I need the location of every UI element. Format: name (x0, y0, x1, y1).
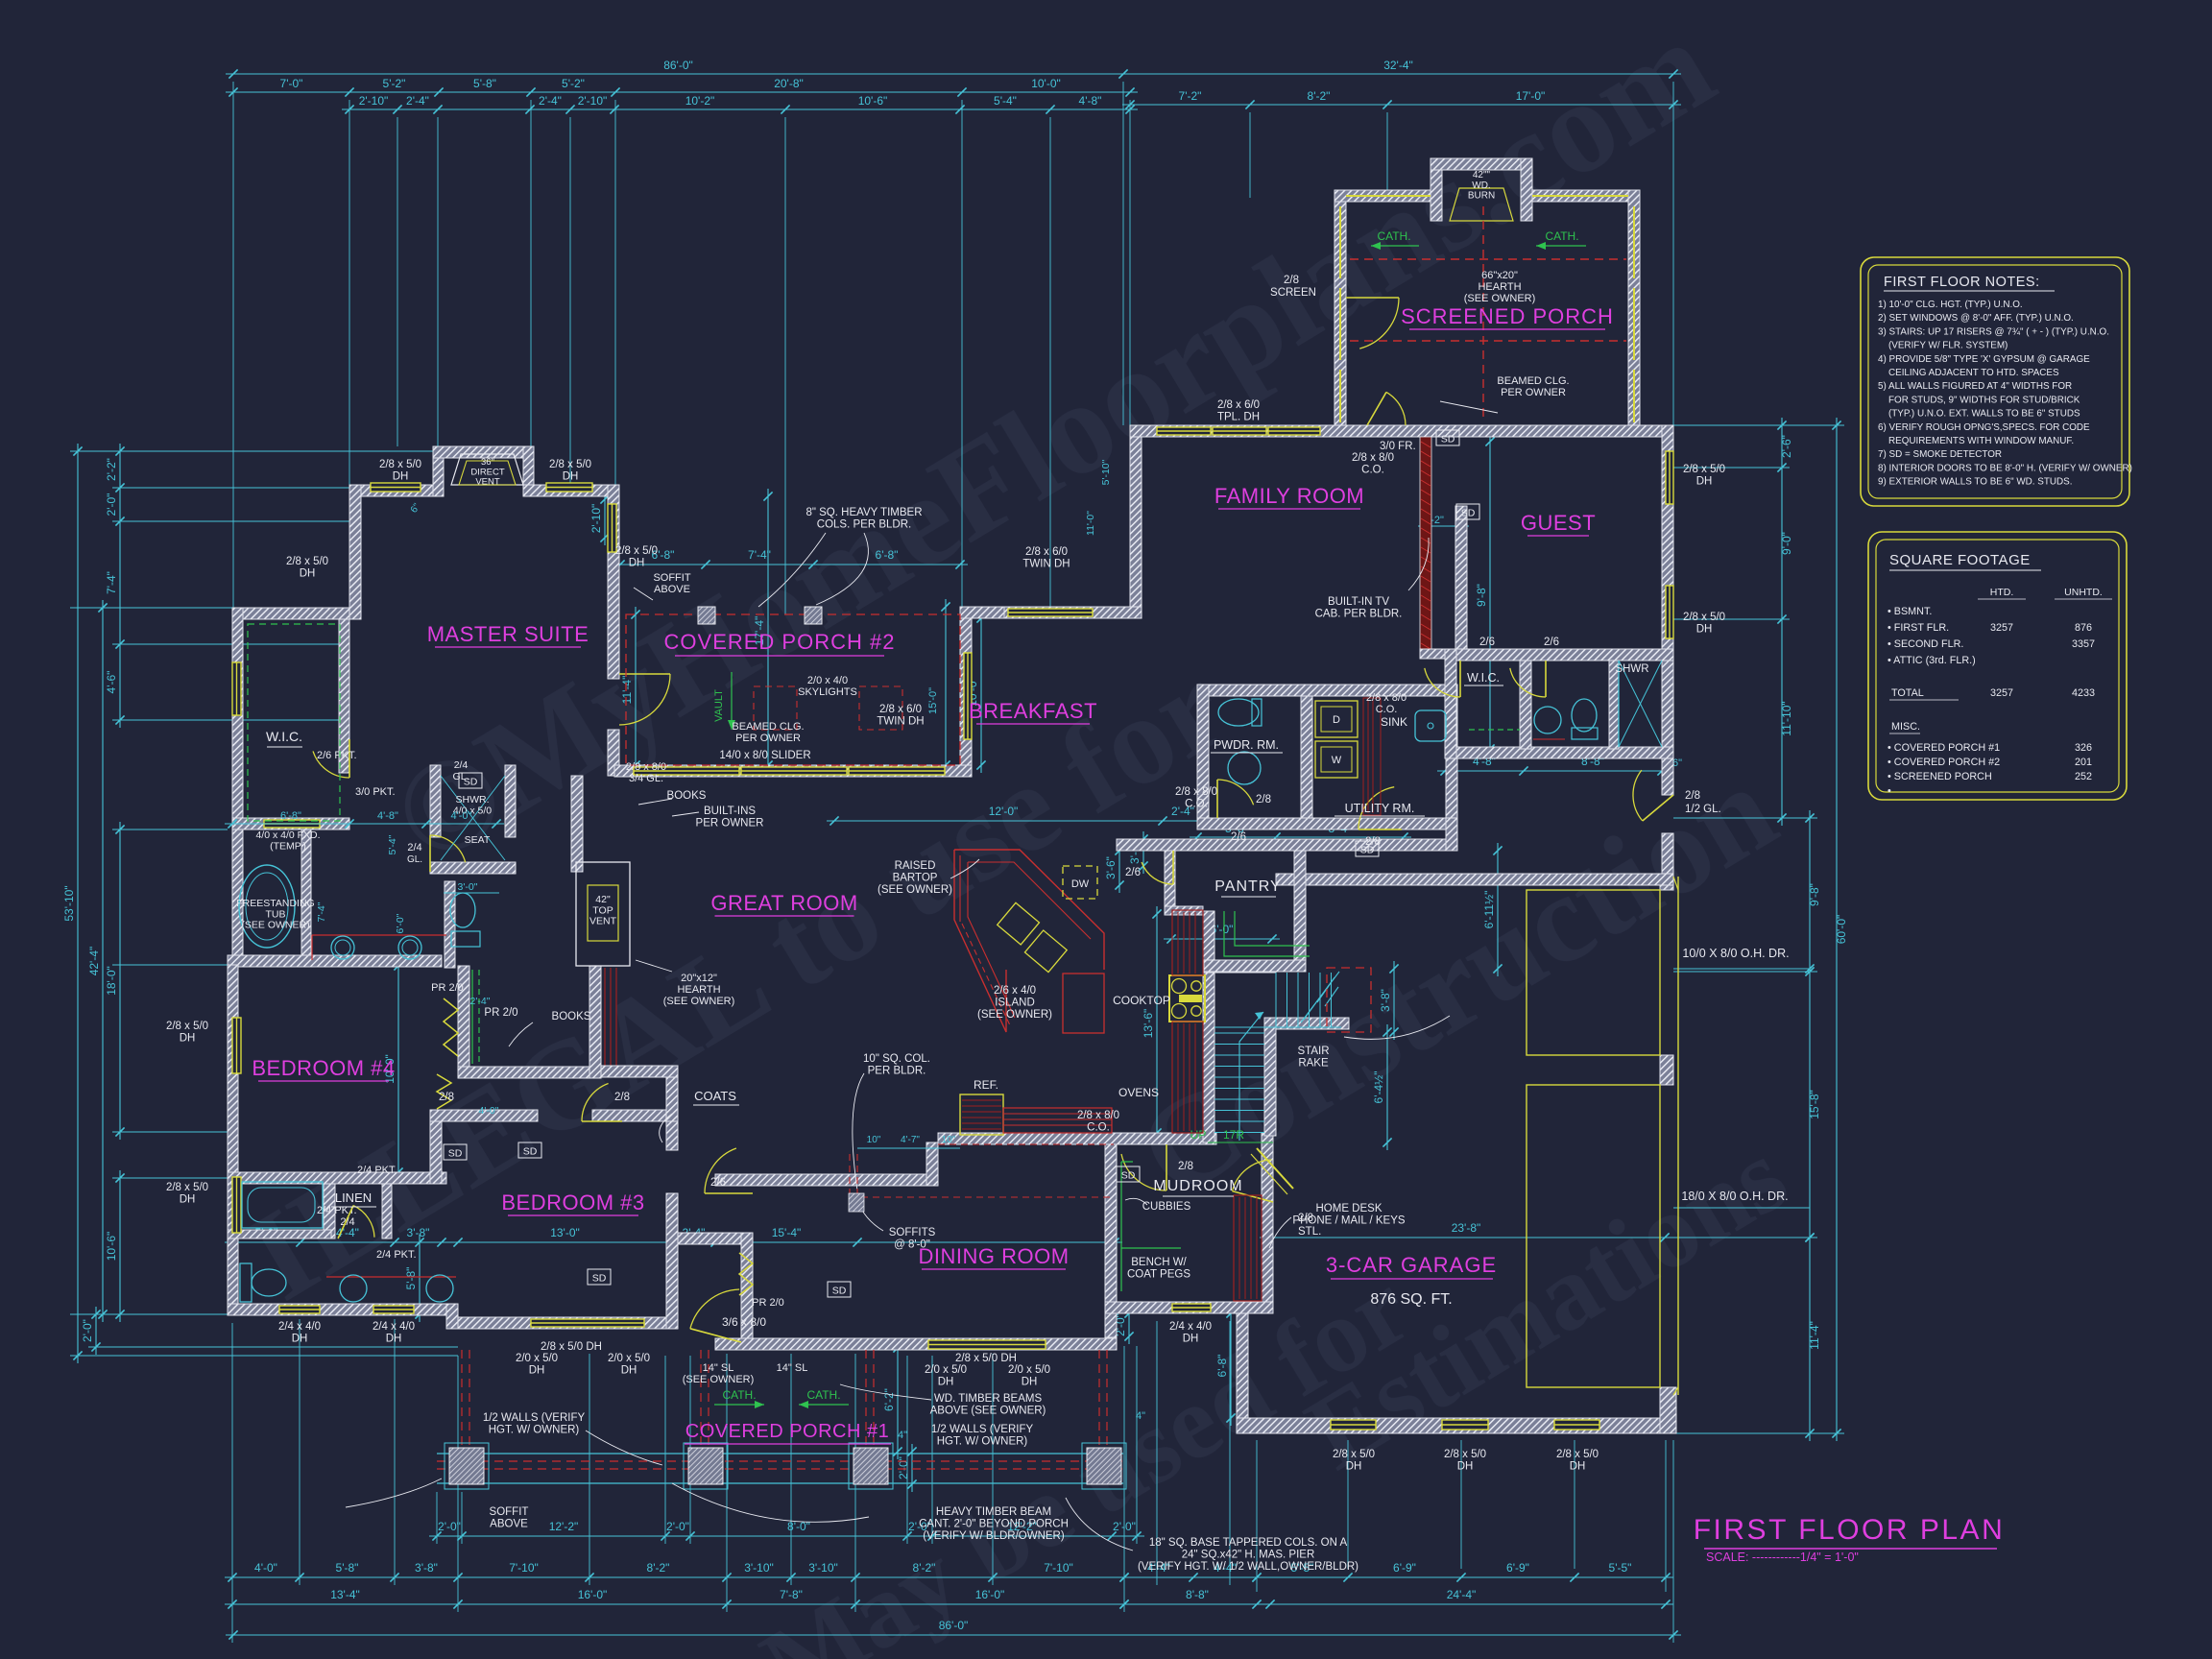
svg-text:DH: DH (1696, 475, 1713, 487)
svg-text:2/0 x 4/0: 2/0 x 4/0 (807, 675, 848, 686)
svg-text:7'-8": 7'-8" (780, 1588, 803, 1601)
svg-text:DH: DH (563, 470, 579, 482)
svg-text:4'-8": 4'-8" (1079, 94, 1102, 108)
svg-text:2/8 x 5/0: 2/8 x 5/0 (615, 545, 658, 557)
svg-text:(VERIFY HGT. W/ 1/2 WALL,OWNER: (VERIFY HGT. W/ 1/2 WALL,OWNER/BLDR) (1138, 1561, 1358, 1573)
svg-text:2/6: 2/6 (1479, 637, 1495, 648)
svg-text:2/8: 2/8 (1284, 275, 1299, 286)
svg-text:C.O.: C.O. (1087, 1121, 1110, 1133)
svg-text:3357: 3357 (2072, 638, 2095, 650)
svg-text:SOFFIT: SOFFIT (653, 572, 690, 584)
svg-text:CUBBIES: CUBBIES (1142, 1201, 1191, 1213)
svg-text:2/8 x 5/0: 2/8 x 5/0 (1444, 1449, 1486, 1460)
svg-text:8" SQ. HEAVY TIMBER: 8" SQ. HEAVY TIMBER (805, 507, 922, 518)
svg-text:12'-2": 12'-2" (549, 1520, 579, 1533)
svg-text:SD: SD (1121, 1170, 1136, 1182)
svg-text:10'-6": 10'-6" (858, 94, 888, 108)
svg-text:•: • (1887, 785, 1891, 797)
svg-text:ABOVE: ABOVE (654, 584, 690, 595)
svg-text:2/6 x 4/0: 2/6 x 4/0 (994, 985, 1036, 997)
svg-text:16'-0": 16'-0" (975, 1588, 1005, 1601)
svg-text:2'-10": 2'-10" (578, 94, 608, 108)
svg-text:4'-6": 4'-6" (105, 671, 118, 694)
svg-text:11'-4": 11'-4" (1808, 1321, 1821, 1350)
svg-text:TWIN DH: TWIN DH (1022, 558, 1070, 569)
svg-text:PER OWNER: PER OWNER (696, 817, 764, 829)
svg-text:4/0 x 4/0 FXD.: 4/0 x 4/0 FXD. (255, 829, 320, 841)
svg-text:15'-8": 15'-8" (1808, 1090, 1821, 1119)
svg-text:4": 4" (898, 1430, 907, 1441)
svg-text:13'-4": 13'-4" (330, 1588, 360, 1601)
svg-text:2/0 x 5/0: 2/0 x 5/0 (516, 1353, 558, 1364)
svg-text:66"x20": 66"x20" (1481, 270, 1518, 281)
svg-text:PR 2/0: PR 2/0 (752, 1297, 784, 1309)
svg-text:2/8: 2/8 (1685, 790, 1700, 802)
svg-text:24'-4": 24'-4" (1447, 1588, 1477, 1601)
svg-text:5'-8": 5'-8" (404, 1267, 418, 1290)
svg-text:5) ALL WALLS FIGURED AT 4" WID: 5) ALL WALLS FIGURED AT 4" WIDTHS FOR (1878, 381, 2072, 392)
svg-text:53'-10": 53'-10" (62, 885, 76, 921)
svg-text:14" SL: 14" SL (703, 1362, 734, 1374)
svg-text:BEDROOM #4: BEDROOM #4 (252, 1056, 395, 1080)
svg-text:2/8 x 5/0: 2/8 x 5/0 (549, 459, 591, 470)
svg-text:4) PROVIDE 5/8" TYPE 'X' GYPSU: 4) PROVIDE 5/8" TYPE 'X' GYPSUM @ GARAGE (1878, 354, 2090, 365)
svg-text:SINK: SINK (1381, 715, 1407, 729)
svg-text:3) STAIRS: UP 17 RISERS @ 7¾": 3) STAIRS: UP 17 RISERS @ 7¾" ( + - ) (T… (1878, 326, 2109, 337)
svg-text:3'-0": 3'-0" (458, 881, 478, 893)
svg-text:15'-0": 15'-0" (927, 687, 939, 714)
svg-text:C.O.: C.O. (1185, 798, 1208, 809)
svg-text:7'-4": 7'-4" (105, 571, 118, 594)
svg-text:• BSMNT.: • BSMNT. (1887, 606, 1932, 617)
svg-text:OVENS: OVENS (1118, 1086, 1159, 1099)
svg-text:3'-10": 3'-10" (808, 1561, 838, 1575)
svg-text:3257: 3257 (1990, 687, 2013, 699)
svg-text:DH: DH (1346, 1460, 1362, 1472)
svg-text:REQUIREMENTS WITH WINDOW MANUF: REQUIREMENTS WITH WINDOW MANUF. (1878, 436, 2074, 446)
svg-text:HTD.: HTD. (1990, 587, 2014, 598)
svg-text:10'-6": 10'-6" (105, 1232, 118, 1262)
svg-text:2/6: 2/6 (1125, 867, 1141, 878)
svg-text:BEAMED CLG.: BEAMED CLG. (732, 721, 804, 733)
svg-text:SOFFIT: SOFFIT (490, 1506, 529, 1518)
svg-text:6'-0": 6'-0" (395, 913, 406, 933)
svg-text:17'-0": 17'-0" (1516, 89, 1546, 103)
svg-text:2'-4": 2'-4" (406, 94, 429, 108)
svg-text:6'-11½": 6'-11½" (1482, 891, 1496, 929)
svg-text:2/8 x 8/0: 2/8 x 8/0 (626, 761, 666, 773)
svg-text:SD: SD (1441, 434, 1455, 445)
svg-text:(SEE OWNER): (SEE OWNER) (663, 996, 735, 1007)
svg-text:(SEE OWNER): (SEE OWNER) (241, 920, 309, 931)
svg-text:COATS: COATS (694, 1089, 736, 1103)
svg-text:2'-2": 2'-2" (105, 458, 118, 481)
svg-text:8'-2": 8'-2" (1308, 89, 1331, 103)
svg-text:BOOKS: BOOKS (552, 1011, 591, 1022)
svg-text:CATH.: CATH. (722, 1388, 756, 1402)
svg-text:2/8 x 5/0: 2/8 x 5/0 (1333, 1449, 1375, 1460)
svg-text:5'-4": 5'-4" (994, 94, 1017, 108)
svg-text:2/8 x 5/0: 2/8 x 5/0 (1556, 1449, 1599, 1460)
svg-text:DH: DH (938, 1376, 954, 1387)
svg-text:(SEE OWNER): (SEE OWNER) (1464, 293, 1536, 304)
svg-text:(SEE OWNER): (SEE OWNER) (977, 1009, 1052, 1021)
svg-text:2'-6": 2'-6" (1780, 435, 1793, 458)
svg-text:12'-0": 12'-0" (989, 805, 1019, 818)
svg-text:RAKE: RAKE (1298, 1057, 1329, 1069)
svg-text:BEAMED CLG.: BEAMED CLG. (1497, 375, 1569, 387)
svg-text:3'-8": 3'-8" (1379, 989, 1392, 1012)
svg-text:326: 326 (2075, 742, 2092, 754)
svg-text:20'-8": 20'-8" (774, 77, 804, 90)
svg-text:HEARTH: HEARTH (1478, 281, 1521, 293)
svg-text:SCREEN: SCREEN (1270, 287, 1316, 299)
svg-text:W.I.C.: W.I.C. (266, 729, 302, 744)
svg-text:DH: DH (292, 1333, 308, 1344)
svg-text:(SEE OWNER): (SEE OWNER) (878, 884, 952, 896)
svg-text:PR 2/0: PR 2/0 (431, 982, 464, 994)
svg-text:3257: 3257 (1990, 622, 2013, 634)
svg-text:876 SQ. FT.: 876 SQ. FT. (1370, 1291, 1452, 1308)
svg-text:DH: DH (180, 1032, 196, 1044)
svg-text:9'-0": 9'-0" (1780, 532, 1793, 555)
svg-text:20"x12": 20"x12" (681, 973, 717, 984)
svg-text:DH: DH (1570, 1460, 1586, 1472)
svg-text:COVERED PORCH #1: COVERED PORCH #1 (685, 1421, 890, 1442)
svg-text:86'-0": 86'-0" (663, 59, 693, 72)
svg-text:2/8 x 6/0: 2/8 x 6/0 (879, 704, 922, 715)
svg-text:16'-0": 16'-0" (578, 1588, 608, 1601)
svg-text:GREAT ROOM: GREAT ROOM (710, 891, 857, 915)
svg-text:10/0 X 8/0 O.H. DR.: 10/0 X 8/0 O.H. DR. (1682, 947, 1789, 960)
svg-text:4233: 4233 (2072, 687, 2095, 699)
svg-text:2'-0": 2'-0" (105, 493, 118, 517)
svg-text:11'-10": 11'-10" (1780, 701, 1793, 735)
svg-text:14/0 x 8/0 SLIDER: 14/0 x 8/0 SLIDER (719, 750, 810, 761)
svg-text:10": 10" (867, 1135, 881, 1145)
svg-text:SD: SD (1461, 508, 1476, 519)
svg-text:4'-0": 4'-0" (479, 1105, 499, 1117)
svg-text:MUDROOM: MUDROOM (1153, 1178, 1242, 1194)
svg-text:STAIR: STAIR (1297, 1046, 1329, 1057)
svg-text:9) EXTERIOR WALLS TO BE 6" WD.: 9) EXTERIOR WALLS TO BE 6" WD. STUDS. (1878, 477, 2073, 488)
svg-text:2/8 x 5/0: 2/8 x 5/0 (166, 1021, 208, 1032)
svg-text:42"": 42"" (1473, 170, 1491, 180)
svg-text:3/6 x 8/0: 3/6 x 8/0 (722, 1315, 766, 1329)
svg-text:(VERIFY W/ FLR. SYSTEM): (VERIFY W/ FLR. SYSTEM) (1878, 341, 2008, 351)
svg-text:6'-9": 6'-9" (1506, 1561, 1529, 1575)
svg-text:• COVERED PORCH #2: • COVERED PORCH #2 (1887, 757, 2000, 768)
svg-text:MISC.: MISC. (1891, 721, 1920, 733)
svg-text:3'-8": 3'-8" (407, 1226, 430, 1239)
svg-text:CATH.: CATH. (1545, 229, 1578, 243)
svg-text:BUILT-IN TV: BUILT-IN TV (1328, 596, 1389, 608)
svg-text:2/4 x 4/0: 2/4 x 4/0 (373, 1321, 415, 1333)
svg-text:42'-4": 42'-4" (87, 947, 101, 976)
svg-text:DH: DH (621, 1364, 637, 1376)
svg-text:2/4: 2/4 (454, 759, 469, 771)
svg-text:BENCH W/: BENCH W/ (1131, 1257, 1187, 1268)
svg-text:2'-0": 2'-0" (666, 1520, 689, 1533)
svg-text:2/8 x 5/0 DH: 2/8 x 5/0 DH (541, 1341, 602, 1353)
svg-text:• FIRST FLR.: • FIRST FLR. (1887, 622, 1949, 634)
svg-text:2/8 x 5/0: 2/8 x 5/0 (1683, 612, 1725, 623)
svg-text:SD: SD (832, 1286, 847, 1297)
svg-text:2/6 PKT.: 2/6 PKT. (317, 750, 357, 761)
svg-text:VENT: VENT (475, 477, 500, 488)
svg-text:2/8: 2/8 (439, 1092, 454, 1103)
svg-text:24" SQ.x42" H. MAS. PIER: 24" SQ.x42" H. MAS. PIER (1182, 1549, 1315, 1560)
svg-text:FOR STUDS, 9" WIDTHS FOR STUD/: FOR STUDS, 9" WIDTHS FOR STUD/BRICK (1878, 395, 2080, 405)
svg-text:VAULT: VAULT (713, 689, 725, 722)
svg-text:DH: DH (386, 1333, 402, 1344)
svg-text:BREAKFAST: BREAKFAST (969, 699, 1097, 723)
svg-text:18/0 X 8/0 O.H. DR.: 18/0 X 8/0 O.H. DR. (1681, 1190, 1788, 1203)
svg-text:UTILITY RM.: UTILITY RM. (1345, 802, 1415, 815)
svg-text:(TYP.) U.N.O. EXT. WALLS TO BE: (TYP.) U.N.O. EXT. WALLS TO BE 6" STUDS (1878, 409, 2080, 420)
svg-text:DW: DW (1071, 878, 1090, 890)
svg-text:2/6: 2/6 (710, 1177, 726, 1189)
svg-text:2/8 x 5/0: 2/8 x 5/0 (286, 556, 328, 567)
svg-text:ISLAND: ISLAND (995, 997, 1035, 1008)
svg-text:15'-4": 15'-4" (772, 1226, 802, 1239)
svg-text:8'-8": 8'-8" (1186, 1588, 1209, 1601)
svg-text:5'-8": 5'-8" (336, 1561, 359, 1575)
svg-text:201: 201 (2075, 757, 2092, 768)
svg-text:2'-0": 2'-0" (81, 1319, 94, 1342)
svg-text:C.O.: C.O. (1376, 704, 1398, 715)
svg-text:10" SQ. COL.: 10" SQ. COL. (863, 1053, 930, 1065)
svg-text:86'-0": 86'-0" (939, 1619, 969, 1632)
svg-text:2/0 x 5/0: 2/0 x 5/0 (1008, 1364, 1050, 1376)
svg-text:2'-10": 2'-10" (359, 94, 389, 108)
svg-text:BUILT-INS: BUILT-INS (704, 805, 756, 817)
svg-text:7'-10": 7'-10" (509, 1561, 539, 1575)
svg-text:2'-4": 2'-4" (539, 94, 562, 108)
svg-text:CAB. PER BLDR.: CAB. PER BLDR. (1315, 608, 1403, 619)
svg-text:7'-4": 7'-4" (316, 902, 327, 922)
svg-text:13'-0": 13'-0" (550, 1226, 580, 1239)
svg-text:SEAT: SEAT (465, 834, 491, 846)
svg-text:5'-5": 5'-5" (1609, 1561, 1632, 1575)
svg-text:STL.: STL. (1298, 1226, 1321, 1238)
svg-text:10'-2": 10'-2" (685, 94, 715, 108)
svg-text:8'-2": 8'-2" (913, 1561, 936, 1575)
svg-text:2/6: 2/6 (1231, 831, 1246, 843)
svg-text:SKYLIGHTS: SKYLIGHTS (798, 686, 857, 698)
svg-text:9'-8": 9'-8" (1808, 883, 1821, 906)
svg-text:4'-7": 4'-7" (901, 1135, 920, 1145)
svg-text:REF.: REF. (974, 1078, 998, 1092)
svg-text:BURN: BURN (1468, 191, 1495, 202)
svg-text:2/8: 2/8 (1256, 794, 1271, 805)
svg-text:1/2 GL.: 1/2 GL. (1685, 804, 1721, 815)
svg-text:PANTRY: PANTRY (1214, 878, 1281, 895)
svg-text:GUEST: GUEST (1521, 511, 1596, 535)
svg-text:FREESTANDING: FREESTANDING (236, 898, 314, 909)
svg-text:WD. TIMBER BEAMS: WD. TIMBER BEAMS (934, 1393, 1043, 1405)
svg-text:RAISED: RAISED (895, 860, 936, 872)
svg-text:10'-0": 10'-0" (1031, 77, 1061, 90)
svg-text:FIRST FLOOR PLAN: FIRST FLOOR PLAN (1694, 1514, 2006, 1546)
svg-text:DH: DH (629, 557, 645, 568)
svg-text:PER OWNER: PER OWNER (1501, 387, 1566, 398)
svg-text:3'-8": 3'-8" (415, 1561, 438, 1575)
svg-text:TUB: TUB (266, 908, 286, 920)
svg-text:MASTER SUITE: MASTER SUITE (427, 622, 589, 646)
svg-text:18" SQ. BASE TAPPERED COLS. ON: 18" SQ. BASE TAPPERED COLS. ON A (1149, 1537, 1348, 1549)
svg-text:SQUARE FOOTAGE: SQUARE FOOTAGE (1889, 552, 2031, 568)
svg-text:2'-0": 2'-0" (897, 1456, 910, 1479)
svg-text:SHWR.: SHWR. (456, 794, 490, 805)
svg-text:5'-10": 5'-10" (1100, 459, 1112, 485)
svg-text:GL.: GL. (453, 771, 469, 782)
svg-text:5'-2": 5'-2" (383, 77, 406, 90)
svg-text:DH: DH (1022, 1376, 1038, 1387)
svg-text:4'-0": 4'-0" (451, 810, 472, 822)
svg-text:2/0 x 5/0: 2/0 x 5/0 (925, 1364, 967, 1376)
svg-text:7'-4": 7'-4" (748, 548, 771, 562)
svg-text:DINING ROOM: DINING ROOM (918, 1244, 1069, 1268)
svg-text:PR 2/0: PR 2/0 (484, 1007, 517, 1019)
svg-text:PER BLDR.: PER BLDR. (868, 1065, 926, 1076)
svg-text:HEAVY TIMBER BEAM: HEAVY TIMBER BEAM (936, 1506, 1051, 1518)
svg-text:2/8 x 8/0: 2/8 x 8/0 (1175, 786, 1217, 798)
svg-text:• COVERED PORCH #1: • COVERED PORCH #1 (1887, 742, 2000, 754)
svg-text:18'-0": 18'-0" (105, 966, 118, 996)
svg-text:5'-8": 5'-8" (473, 77, 496, 90)
svg-text:11'-0": 11'-0" (1085, 511, 1096, 536)
svg-text:8'-2": 8'-2" (647, 1561, 670, 1575)
svg-text:BEDROOM #3: BEDROOM #3 (501, 1190, 644, 1214)
svg-text:W: W (1332, 755, 1342, 766)
svg-text:WD.: WD. (1472, 180, 1490, 191)
svg-text:2/8 x 8/0: 2/8 x 8/0 (1366, 692, 1407, 704)
svg-text:SCREENED PORCH: SCREENED PORCH (1401, 304, 1614, 328)
svg-text:13'-6": 13'-6" (1142, 1009, 1155, 1039)
svg-text:2/8 x 5/0 DH: 2/8 x 5/0 DH (955, 1353, 1017, 1364)
svg-text:COLS. PER BLDR.: COLS. PER BLDR. (817, 518, 911, 530)
svg-text:BARTOP: BARTOP (893, 872, 938, 883)
svg-text:10": 10" (942, 1135, 956, 1145)
svg-text:CEILING ADJACENT TO HTD. SPACE: CEILING ADJACENT TO HTD. SPACES (1878, 368, 2059, 378)
svg-text:1/2 WALLS (VERIFY: 1/2 WALLS (VERIFY (483, 1412, 586, 1424)
svg-text:@ 8'-0": @ 8'-0" (894, 1238, 930, 1250)
svg-text:DH: DH (529, 1364, 545, 1376)
svg-text:42": 42" (595, 894, 611, 905)
svg-text:2/8 x 5/0: 2/8 x 5/0 (379, 459, 421, 470)
svg-text:UNHTD.: UNHTD. (2064, 587, 2103, 598)
svg-text:SD: SD (592, 1273, 607, 1285)
svg-text:CATH.: CATH. (806, 1388, 840, 1402)
svg-text:2/4 x 4/0: 2/4 x 4/0 (278, 1321, 321, 1333)
svg-text:C.O.: C.O. (1361, 464, 1384, 475)
svg-text:GL.: GL. (407, 854, 422, 865)
svg-text:4'-4": 4'-4" (336, 1226, 359, 1239)
svg-text:SHWR: SHWR (1615, 663, 1648, 675)
svg-text:HGT. W/ OWNER): HGT. W/ OWNER) (937, 1435, 1028, 1447)
svg-text:2'-10": 2'-10" (589, 504, 603, 534)
svg-text:2/8 x 6/0: 2/8 x 6/0 (1025, 546, 1068, 558)
svg-text:2/8 x 6/0: 2/8 x 6/0 (1217, 399, 1260, 411)
svg-text:6'-9": 6'-9" (1393, 1561, 1416, 1575)
svg-text:7'-10": 7'-10" (1044, 1561, 1073, 1575)
svg-text:3/0 FR.: 3/0 FR. (1380, 441, 1416, 452)
svg-text:DH: DH (1696, 623, 1713, 635)
svg-text:876: 876 (2075, 622, 2092, 634)
svg-text:• ATTIC (3rd. FLR.): • ATTIC (3rd. FLR.) (1887, 655, 1976, 666)
svg-text:SD: SD (1360, 845, 1375, 856)
svg-text:2/4 PKT.: 2/4 PKT. (376, 1249, 417, 1261)
svg-text:2'-0": 2'-0" (438, 1520, 461, 1533)
svg-text:CATH.: CATH. (1377, 229, 1410, 243)
svg-text:HOME DESK: HOME DESK (1315, 1203, 1382, 1214)
svg-text:DH: DH (1183, 1333, 1199, 1344)
svg-text:11'-4": 11'-4" (620, 676, 634, 705)
svg-text:TOP: TOP (592, 904, 613, 916)
svg-text:2/4 PKT.: 2/4 PKT. (357, 1165, 397, 1176)
svg-text:7'-2": 7'-2" (1179, 89, 1202, 103)
svg-text:COOKTOP: COOKTOP (1113, 994, 1170, 1007)
svg-text:VENT: VENT (589, 916, 617, 927)
svg-text:3-CAR GARAGE: 3-CAR GARAGE (1326, 1253, 1497, 1277)
svg-text:1) 10'-0" CLG. HGT. (TYP.) U.: 1) 10'-0" CLG. HGT. (TYP.) U.N.O. (1878, 300, 2023, 310)
svg-text:• SECOND FLR.: • SECOND FLR. (1887, 638, 1963, 650)
svg-text:FIRST FLOOR NOTES:: FIRST FLOOR NOTES: (1884, 275, 2040, 290)
svg-text:FAMILY ROOM: FAMILY ROOM (1214, 484, 1364, 508)
svg-text:6) VERIFY ROUGH OPNG'S,SPECS.: 6) VERIFY ROUGH OPNG'S,SPECS. FOR CODE (1878, 422, 2090, 433)
svg-text:6'-4½": 6'-4½" (1372, 1071, 1385, 1104)
svg-text:(VERIFY W/ BLDR/OWNER): (VERIFY W/ BLDR/OWNER) (923, 1530, 1065, 1542)
svg-text:252: 252 (2075, 771, 2092, 782)
svg-text:4'-0": 4'-0" (254, 1561, 277, 1575)
svg-text:32'-4": 32'-4" (1383, 59, 1413, 72)
svg-text:9'-8": 9'-8" (1475, 584, 1488, 607)
svg-text:6'-8": 6'-8" (876, 548, 899, 562)
svg-text:(TEMP.): (TEMP.) (270, 840, 306, 852)
svg-text:3'-6": 3'-6" (1104, 856, 1118, 879)
svg-text:5'-4": 5'-4" (387, 834, 398, 854)
svg-text:6'-8": 6'-8" (280, 810, 301, 822)
svg-text:17R: 17R (1223, 1128, 1244, 1142)
svg-text:TPL. DH: TPL. DH (1217, 411, 1260, 422)
svg-text:2) SET WINDOWS @ 8'-0" AFF. (T: 2) SET WINDOWS @ 8'-0" AFF. (TYP.) U.N.O… (1878, 313, 2074, 324)
svg-text:2/0 x 5/0: 2/0 x 5/0 (608, 1353, 650, 1364)
svg-text:2'-4": 2'-4" (470, 996, 491, 1007)
svg-text:3/0 PKT.: 3/0 PKT. (355, 786, 396, 798)
svg-text:2/8: 2/8 (1178, 1161, 1193, 1172)
svg-text:2/8: 2/8 (614, 1092, 630, 1103)
svg-text:BOOKS: BOOKS (667, 790, 707, 802)
svg-text:LINEN: LINEN (335, 1190, 372, 1205)
svg-text:6'-8": 6'-8" (1215, 1355, 1229, 1378)
svg-text:DH: DH (180, 1193, 196, 1205)
svg-text:SD: SD (523, 1146, 538, 1158)
svg-text:TWIN DH: TWIN DH (877, 715, 924, 727)
svg-text:2/8 x 5/0: 2/8 x 5/0 (1683, 464, 1725, 475)
svg-text:ABOVE (SEE OWNER): ABOVE (SEE OWNER) (930, 1405, 1046, 1416)
svg-text:2/4 x 4/0: 2/4 x 4/0 (1169, 1321, 1212, 1333)
svg-text:6": 6" (1672, 757, 1682, 769)
svg-text:W.I.C.: W.I.C. (1467, 671, 1500, 685)
svg-text:DH: DH (300, 567, 316, 579)
svg-text:COVERED PORCH #2: COVERED PORCH #2 (664, 630, 896, 654)
svg-text:2/6: 2/6 (1544, 637, 1559, 648)
svg-text:HGT. W/ OWNER): HGT. W/ OWNER) (489, 1424, 580, 1435)
svg-text:6'-2": 6'-2" (882, 1388, 896, 1411)
svg-text:HEARTH: HEARTH (677, 984, 720, 996)
svg-text:5'-2": 5'-2" (562, 77, 585, 90)
